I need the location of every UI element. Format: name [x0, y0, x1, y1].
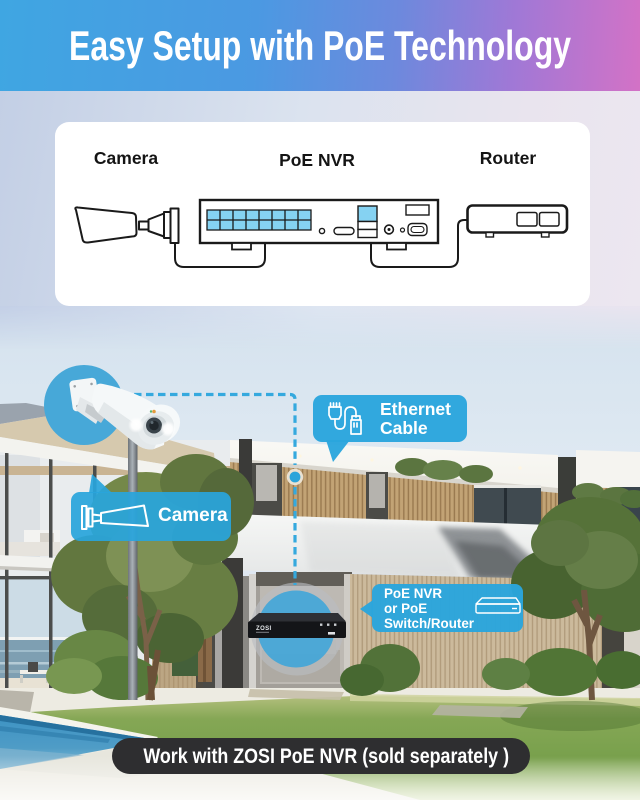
svg-text:ZOSI: ZOSI — [256, 626, 272, 632]
